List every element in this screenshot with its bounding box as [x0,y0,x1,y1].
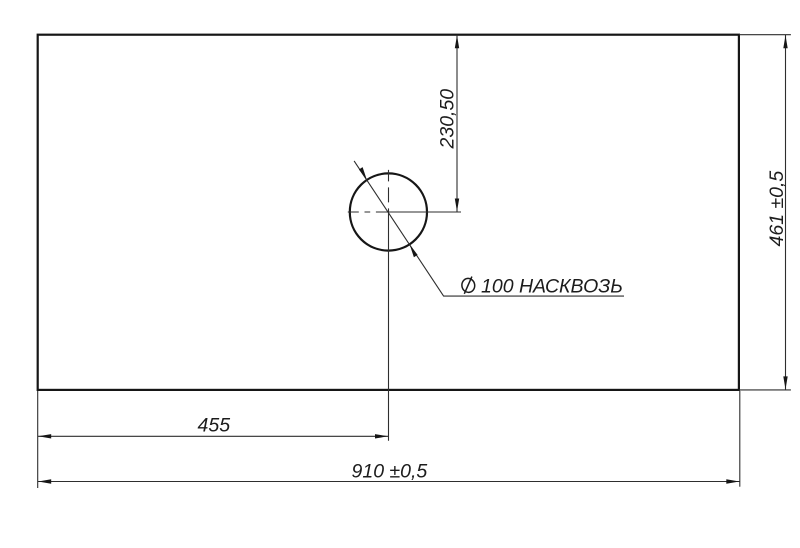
svg-text:230,50: 230,50 [437,89,459,150]
svg-text:100 НАСКВОЗЬ: 100 НАСКВОЗЬ [481,276,623,298]
svg-text:910 ±0,5: 910 ±0,5 [352,460,428,482]
svg-text:461 ±0,5: 461 ±0,5 [766,171,788,247]
svg-text:455: 455 [198,414,231,436]
